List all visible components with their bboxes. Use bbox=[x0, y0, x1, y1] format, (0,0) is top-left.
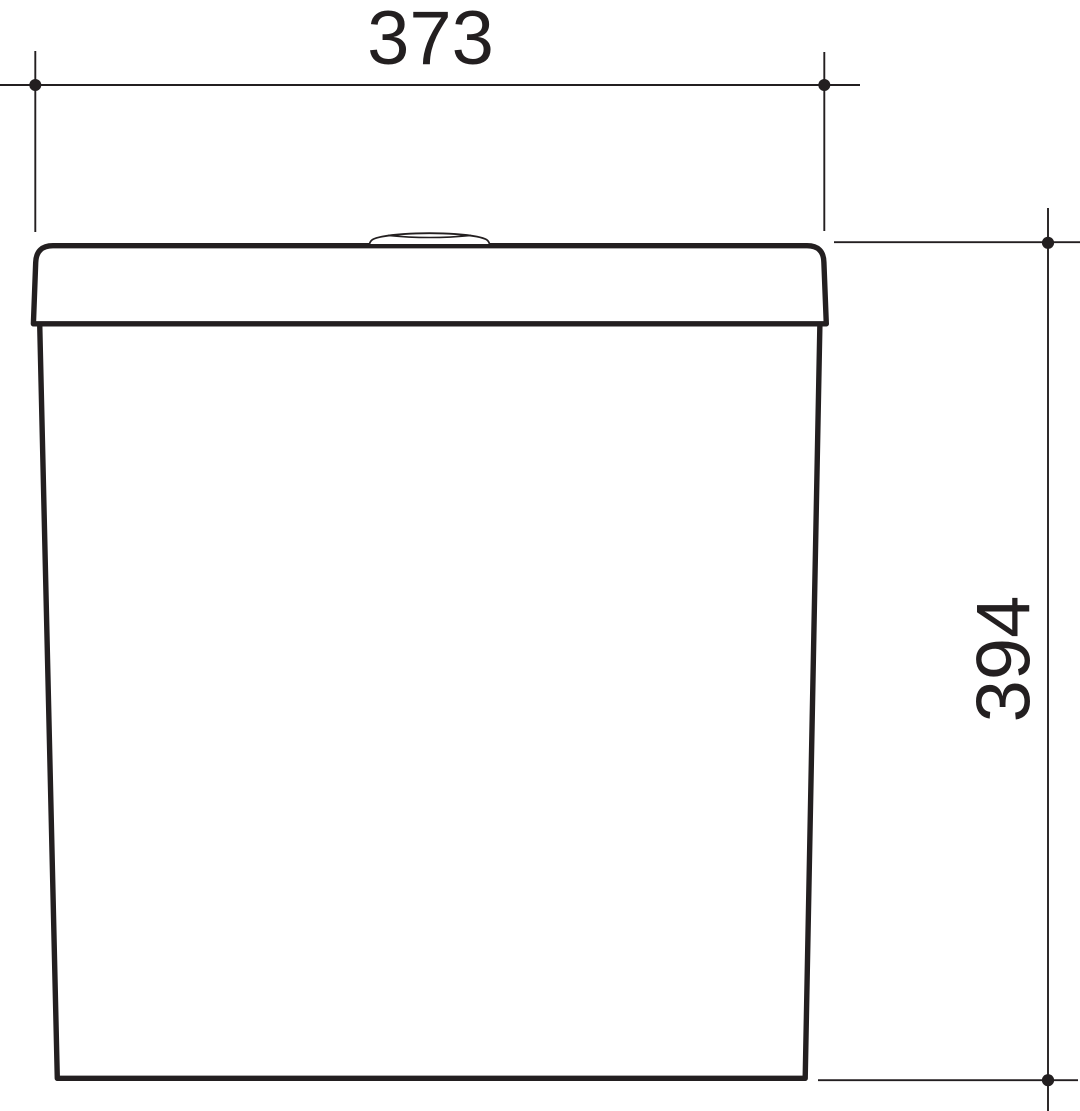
svg-text:373: 373 bbox=[367, 0, 494, 81]
svg-text:394: 394 bbox=[962, 596, 1047, 723]
